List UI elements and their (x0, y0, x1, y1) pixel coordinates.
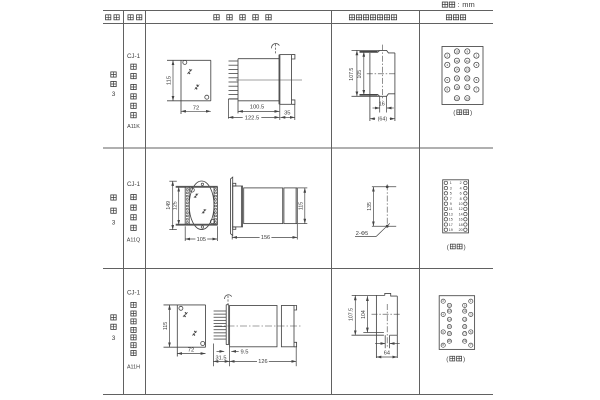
svg-text:): ) (464, 244, 466, 251)
svg-text:17: 17 (449, 223, 453, 227)
svg-text:115: 115 (163, 322, 169, 330)
svg-text:10: 10 (455, 50, 459, 54)
svg-text:3: 3 (112, 335, 116, 342)
svg-text:16: 16 (448, 325, 452, 329)
svg-text:20: 20 (459, 228, 463, 232)
svg-text:8: 8 (460, 197, 462, 201)
svg-text:18: 18 (448, 332, 452, 336)
svg-text:15: 15 (463, 325, 467, 329)
svg-text:6: 6 (460, 192, 462, 196)
svg-text:CJ-1: CJ-1 (127, 53, 141, 60)
svg-text:3: 3 (112, 91, 116, 98)
svg-text:19: 19 (463, 339, 467, 343)
svg-text:mm: mm (462, 0, 475, 9)
svg-text:125: 125 (173, 201, 179, 210)
svg-text:9: 9 (464, 303, 466, 307)
svg-text:(: ( (446, 356, 449, 363)
svg-text:100.5: 100.5 (250, 105, 265, 111)
svg-text:3: 3 (476, 63, 478, 67)
svg-text:2-Φ5: 2-Φ5 (356, 231, 369, 237)
svg-text:64: 64 (384, 351, 390, 357)
svg-text:35: 35 (284, 110, 290, 116)
svg-text:8: 8 (446, 88, 448, 92)
svg-text:19: 19 (449, 228, 453, 232)
svg-text:9: 9 (450, 202, 452, 206)
svg-text:104: 104 (361, 310, 367, 319)
svg-text:18: 18 (459, 223, 463, 227)
svg-text:2: 2 (446, 54, 448, 58)
svg-text:A11K: A11K (127, 124, 140, 130)
svg-text:107.5: 107.5 (349, 308, 355, 321)
svg-text:72: 72 (188, 347, 194, 353)
svg-text:13: 13 (449, 212, 453, 216)
svg-text:115: 115 (299, 202, 305, 210)
svg-text:15: 15 (466, 77, 470, 81)
svg-text:115: 115 (166, 76, 172, 85)
svg-text:20: 20 (448, 339, 452, 343)
svg-text:1: 1 (470, 299, 472, 303)
svg-text:8: 8 (442, 343, 444, 347)
svg-text:16: 16 (379, 101, 385, 107)
svg-text:1: 1 (450, 181, 452, 185)
svg-text:19: 19 (466, 96, 470, 100)
svg-text:9.5: 9.5 (240, 349, 248, 355)
svg-text:11: 11 (449, 207, 453, 211)
svg-text:A11Q: A11Q (127, 238, 140, 244)
svg-text:14: 14 (448, 317, 452, 321)
svg-text:4: 4 (442, 312, 444, 316)
svg-text:5: 5 (476, 78, 478, 82)
svg-text:12: 12 (455, 59, 459, 63)
svg-text:126: 126 (258, 359, 267, 365)
svg-text:17: 17 (466, 85, 470, 89)
svg-text:14: 14 (459, 212, 463, 216)
svg-text:20: 20 (455, 96, 459, 100)
svg-text:4: 4 (460, 186, 462, 190)
svg-text::: : (457, 2, 459, 9)
svg-text:5: 5 (470, 330, 472, 334)
svg-text:135: 135 (367, 202, 373, 211)
svg-text:149: 149 (166, 201, 172, 210)
svg-text:7: 7 (470, 343, 472, 347)
svg-text:156: 156 (261, 235, 270, 241)
svg-text:5: 5 (450, 192, 452, 196)
svg-text:6: 6 (446, 78, 448, 82)
svg-text:3: 3 (470, 312, 472, 316)
svg-text:6: 6 (442, 330, 444, 334)
svg-text:3: 3 (450, 186, 452, 190)
svg-text:107.5: 107.5 (349, 68, 355, 81)
svg-text:122.5: 122.5 (245, 115, 260, 121)
svg-text:31.5: 31.5 (216, 356, 227, 362)
svg-text:10: 10 (459, 202, 463, 206)
svg-text:14: 14 (455, 68, 459, 72)
svg-text:16: 16 (455, 77, 459, 81)
svg-text:11: 11 (463, 309, 466, 313)
svg-text:7: 7 (476, 88, 478, 92)
svg-text:13: 13 (466, 68, 470, 72)
svg-text:13: 13 (463, 317, 467, 321)
svg-text:9: 9 (466, 50, 468, 54)
svg-text:15: 15 (449, 218, 453, 222)
svg-text:4: 4 (446, 63, 448, 67)
svg-text:1: 1 (476, 54, 478, 58)
svg-text:105: 105 (357, 70, 363, 79)
svg-text:11: 11 (466, 59, 469, 63)
svg-text:10: 10 (448, 303, 452, 307)
svg-text:17: 17 (463, 332, 467, 336)
svg-text:7: 7 (450, 197, 452, 201)
svg-text:3: 3 (112, 220, 116, 227)
svg-text:CJ-1: CJ-1 (127, 290, 141, 297)
svg-text:12: 12 (459, 207, 463, 211)
svg-text:2: 2 (460, 181, 462, 185)
svg-text:18: 18 (455, 85, 459, 89)
svg-text:72: 72 (193, 105, 199, 111)
svg-text:(: ( (453, 110, 456, 117)
svg-text:2: 2 (442, 299, 444, 303)
svg-text:): ) (470, 110, 472, 117)
svg-text:(64): (64) (378, 116, 388, 122)
svg-text:): ) (463, 356, 465, 363)
svg-text:(: ( (447, 244, 450, 251)
svg-text:A11H: A11H (127, 365, 140, 371)
svg-text:16: 16 (459, 218, 463, 222)
svg-text:105: 105 (197, 237, 206, 243)
svg-text:CJ-1: CJ-1 (127, 181, 141, 188)
svg-text:12: 12 (448, 309, 452, 313)
